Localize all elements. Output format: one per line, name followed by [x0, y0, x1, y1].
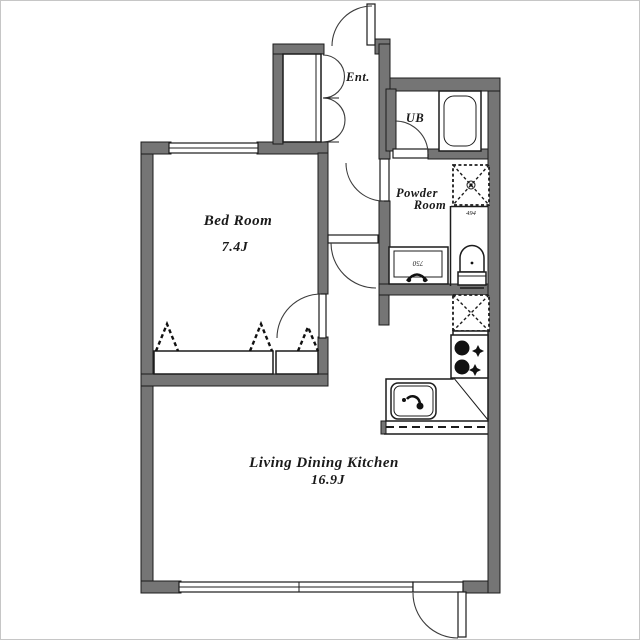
closet: [154, 324, 318, 374]
ldk-exterior-door: [413, 582, 466, 638]
powder-room-label-line2: Room: [413, 198, 447, 212]
shoe-cabinet: [283, 54, 345, 142]
bathtub: [439, 91, 481, 151]
stove: [451, 335, 488, 378]
powder-room-door: [346, 159, 389, 201]
toilet-nook-dimension-label: 494: [466, 210, 477, 217]
toilet-nook: [451, 206, 489, 288]
bedroom-window: [169, 143, 258, 153]
toilet: [458, 246, 486, 289]
kitchen: [384, 295, 489, 434]
floorplan-svg: Bed Room 7.4J Living Dining Kitchen 16.9…: [1, 1, 639, 639]
ldk-hall-door: [328, 235, 378, 288]
unit-bath-label: UB: [406, 111, 424, 125]
entrance-door: [332, 4, 375, 46]
bedroom-area-label: 7.4J: [222, 240, 249, 255]
bedroom-door: [277, 294, 326, 338]
ldk-label: Living Dining Kitchen: [248, 455, 399, 471]
floorplan-canvas: Bed Room 7.4J Living Dining Kitchen 16.9…: [0, 0, 640, 640]
washing-machine-space: [453, 165, 489, 205]
refrigerator-space: [453, 295, 489, 331]
unit-bath-door: [393, 121, 428, 158]
entrance-label: Ent.: [345, 70, 370, 84]
ldk-area-label: 16.9J: [311, 473, 346, 488]
vanity-dimension-label: 750: [412, 259, 423, 267]
bedroom-label: Bed Room: [203, 213, 273, 229]
ldk-window: [179, 582, 413, 592]
kitchen-sink: [391, 383, 436, 419]
